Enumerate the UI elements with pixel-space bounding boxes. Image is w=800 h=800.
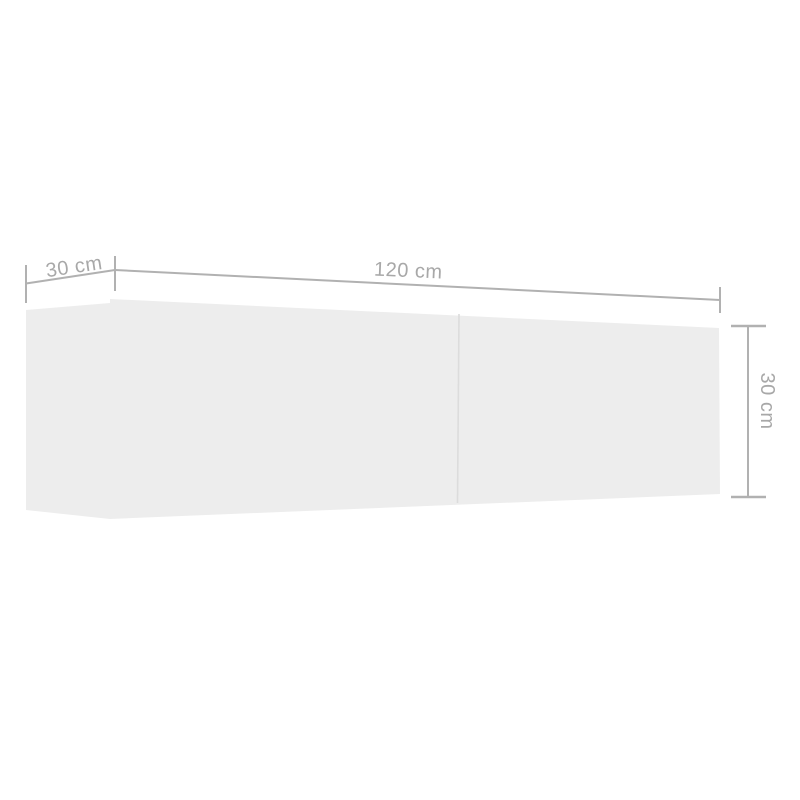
height-dimension: 30 cm [731, 326, 778, 497]
height-dimension-label: 30 cm [756, 373, 778, 430]
product-dimension-image: 30 cm 120 cm 30 cm [0, 0, 800, 800]
depth-dimension-label: 30 cm [44, 252, 104, 282]
dimension-diagram-canvas: 30 cm 120 cm 30 cm [0, 0, 800, 800]
cabinet-body [26, 299, 720, 519]
width-dimension-label: 120 cm [374, 258, 444, 283]
depth-dimension: 30 cm [26, 252, 115, 303]
